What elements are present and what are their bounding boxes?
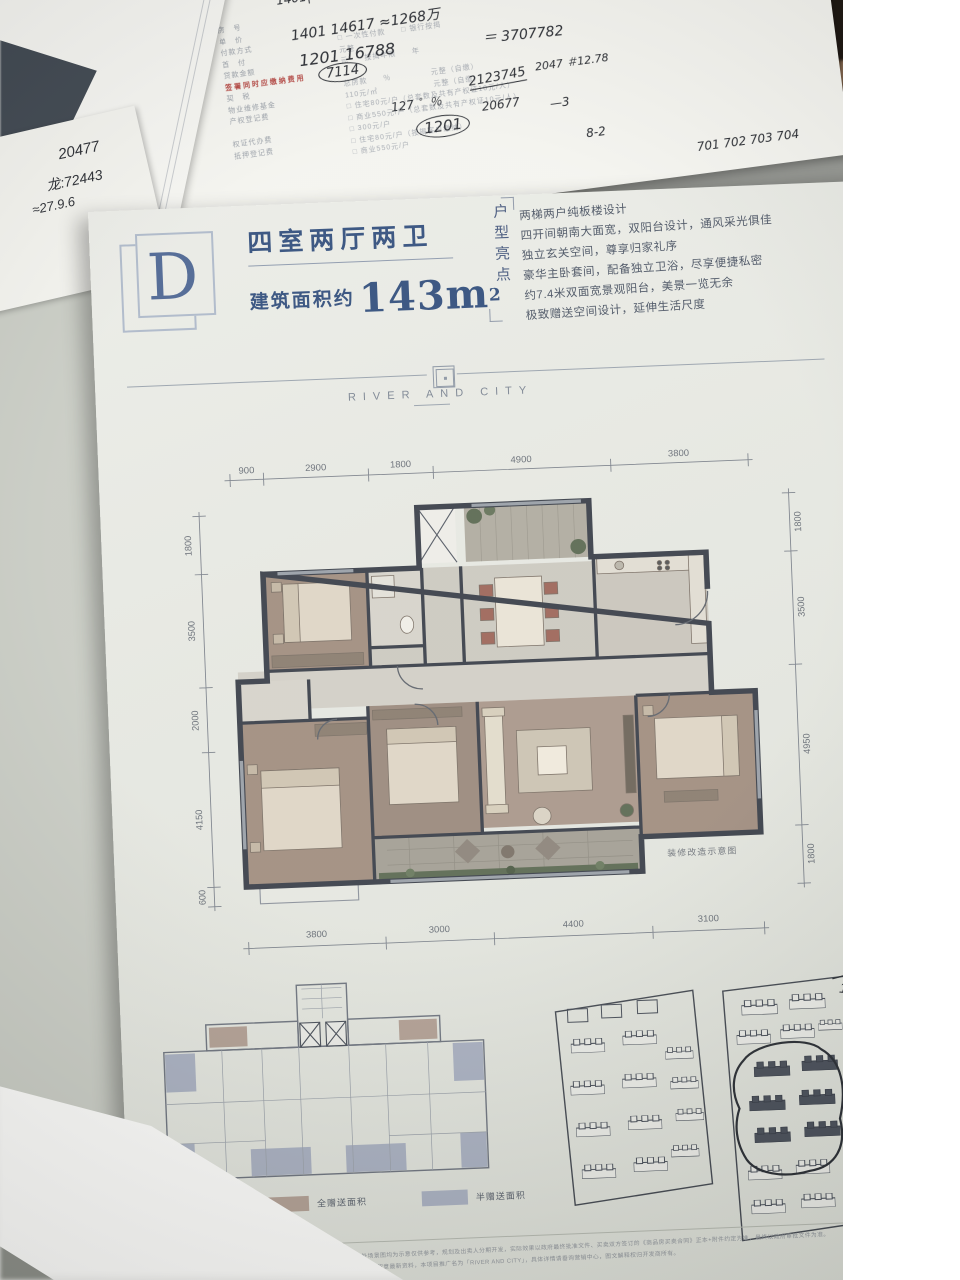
svg-text:1800: 1800	[390, 459, 411, 470]
area-value: 143m	[358, 270, 490, 322]
svg-text:1800: 1800	[806, 843, 817, 864]
unit-layout-title: 四室两厅两卫	[247, 216, 434, 259]
floorplan-figure: 900 2900 1800 4900 3800 1800 3500 2000 4…	[170, 429, 839, 1000]
svg-text:1800: 1800	[183, 536, 194, 557]
buildings-highlighted	[747, 1055, 840, 1143]
brand-band: RIVER AND CITY	[95, 348, 843, 420]
handwriting: —3	[549, 94, 570, 110]
svg-text:3100: 3100	[698, 913, 719, 924]
band-line	[127, 375, 427, 388]
photo-of-brochure: 房 号 单 价 付款方式□ 一次性付款 □ 银行按揭 首 付元整 贷款金额元 按…	[0, 0, 843, 1280]
unit-type-letter: D	[133, 233, 212, 322]
brand-square-icon	[432, 365, 455, 388]
half-gift-label: 半赠送面积	[476, 1188, 526, 1203]
handwritten-16: 16	[839, 980, 843, 999]
svg-text:1800: 1800	[792, 511, 803, 532]
svg-text:3000: 3000	[429, 924, 450, 935]
area-line: 建筑面积约 143m2	[249, 270, 502, 327]
svg-text:900: 900	[238, 465, 254, 475]
highlights-list: 两梯两户纯板楼设计 四开间朝南大面宽，双阳台设计，通风采光俱佳 独立玄关空间，尊…	[519, 187, 836, 327]
unit-type-badge: D	[119, 231, 217, 349]
renovation-caption: 装修改造示意图	[667, 845, 738, 859]
svg-text:4400: 4400	[563, 919, 584, 930]
svg-text:600: 600	[197, 890, 208, 906]
highlights-title: 户型亮点	[487, 197, 517, 322]
svg-text:4900: 4900	[510, 454, 531, 465]
svg-text:3800: 3800	[306, 929, 327, 940]
svg-text:4150: 4150	[194, 809, 205, 830]
svg-text:4950: 4950	[801, 733, 812, 754]
handwriting: 8-2	[585, 124, 606, 140]
svg-text:3500: 3500	[186, 621, 197, 642]
keyplan-inner-walls	[161, 978, 488, 1181]
floorplan-brochure: D 四室两厅两卫 建筑面积约 143m2 户型亮点 两梯两户纯板楼设计 四开间朝…	[88, 180, 843, 1280]
keyplan-elevators	[300, 1021, 347, 1047]
svg-text:2000: 2000	[190, 710, 201, 731]
brand-underline	[414, 404, 450, 406]
svg-text:2900: 2900	[305, 462, 326, 473]
handwriting: 701 702 703 704	[696, 127, 800, 154]
band-line	[457, 359, 825, 375]
title-divider	[248, 257, 453, 266]
site-plan: 16	[544, 969, 843, 1257]
keyplan-half-gift-areas	[165, 1042, 488, 1180]
floorplan-svg: 900 2900 1800 4900 3800 1800 3500 2000 4…	[170, 429, 839, 1000]
area-label: 建筑面积约	[249, 288, 355, 313]
half-gift-swatch	[422, 1190, 469, 1207]
svg-text:3500: 3500	[796, 596, 807, 617]
svg-text:3800: 3800	[668, 448, 689, 459]
full-gift-label: 全赠送面积	[317, 1195, 367, 1210]
